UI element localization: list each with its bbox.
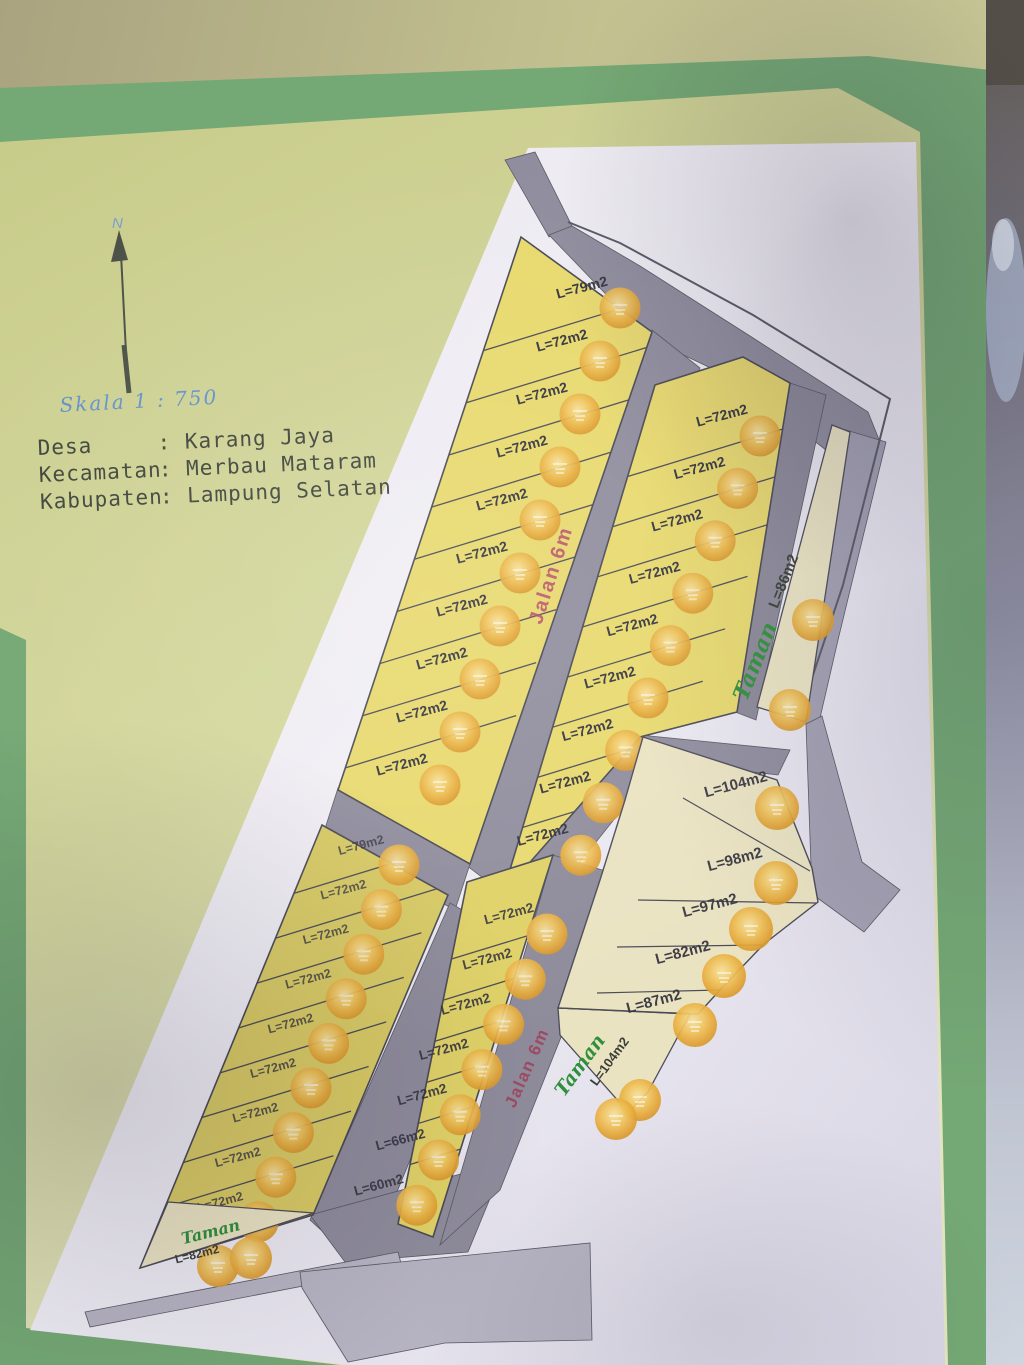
sold-sticker-badge [291, 1068, 332, 1109]
sold-sticker-badge [595, 1098, 637, 1140]
sold-sticker-badge [560, 394, 601, 435]
background-right-strip [986, 0, 1024, 1365]
sold-sticker-badge [754, 861, 798, 905]
sold-sticker-badge [583, 782, 624, 823]
sold-sticker-badge [255, 1157, 296, 1198]
sold-sticker-badge [361, 889, 402, 930]
background-book-spine-highlight [992, 219, 1014, 271]
background-right-corner [986, 0, 1024, 85]
sold-sticker-badge [343, 934, 384, 975]
north-label: N [112, 215, 123, 232]
site-plan-map: L=79m2L=72m2L=72m2L=72m2L=72m2L=72m2L=72… [0, 0, 1024, 1365]
sold-sticker-badge [755, 786, 799, 830]
sold-sticker-badge [461, 1049, 502, 1090]
sold-sticker-badge [650, 625, 691, 666]
sold-sticker-badge [480, 606, 521, 647]
sold-sticker-badge [420, 765, 461, 806]
sold-sticker-badge [460, 659, 501, 700]
sold-sticker-badge [326, 978, 367, 1019]
sold-sticker-badge [600, 288, 641, 329]
sold-sticker-badge [673, 1003, 717, 1047]
sold-sticker-badge [440, 712, 481, 753]
sold-sticker-badge [273, 1112, 314, 1153]
sold-sticker-badge [628, 678, 669, 719]
sold-sticker-badge [418, 1140, 459, 1181]
site-plan-photo: L=79m2L=72m2L=72m2L=72m2L=72m2L=72m2L=72… [0, 0, 1024, 1365]
sold-sticker-badge [527, 914, 568, 955]
sold-sticker-badge [230, 1237, 272, 1279]
sold-sticker-badge [500, 553, 541, 594]
sold-sticker-badge [483, 1004, 524, 1045]
sold-sticker-badge [308, 1023, 349, 1064]
sold-sticker-badge [769, 689, 811, 731]
sold-sticker-badge [792, 599, 834, 641]
sold-sticker-badge [379, 845, 420, 886]
sold-sticker-badge [440, 1094, 481, 1135]
sold-sticker-badge [695, 520, 736, 561]
sold-sticker-badge [580, 341, 621, 382]
sold-sticker-badge [540, 447, 581, 488]
sold-sticker-badge [505, 959, 546, 1000]
sold-sticker-badge [740, 416, 781, 457]
sold-sticker-badge [560, 835, 601, 876]
sold-sticker-badge [396, 1185, 437, 1226]
sold-sticker-badge [672, 573, 713, 614]
sold-sticker-badge [717, 468, 758, 509]
sold-sticker-badge [729, 907, 773, 951]
location-row-label: Desa [37, 434, 93, 460]
sold-sticker-badge [702, 954, 746, 998]
